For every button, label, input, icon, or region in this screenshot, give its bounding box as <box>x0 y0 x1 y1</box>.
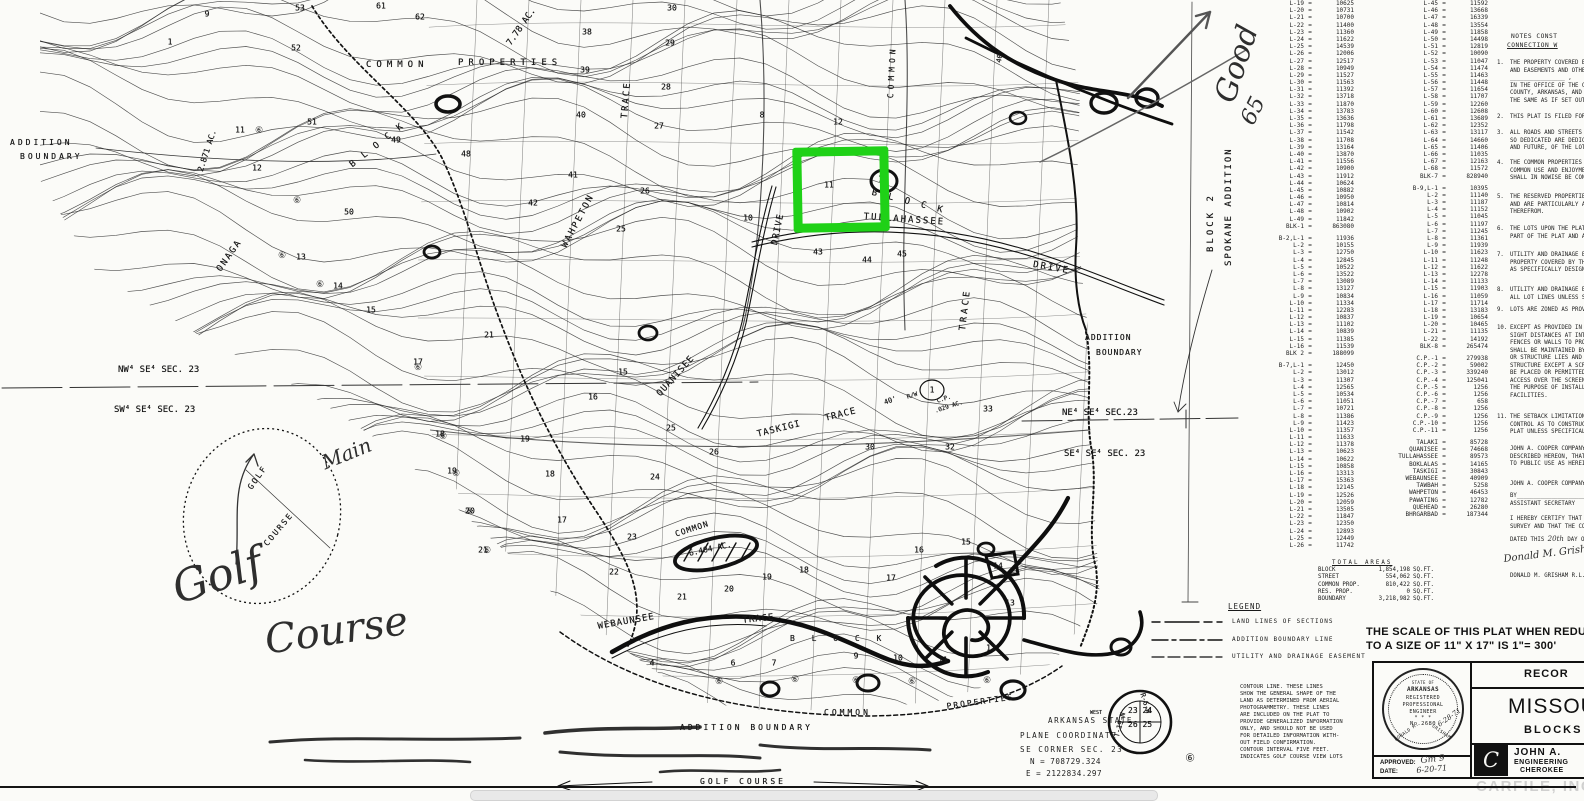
firm-name: JOHN A. <box>1514 747 1561 758</box>
lot-area-cell: C.P.-11 <box>1388 427 1438 434</box>
total-areas-row: BOUNDARY3,218,982SQ.FT. <box>1318 596 1435 602</box>
lot-area-row: L-7=13089 <box>1254 278 1354 285</box>
lot-area-cell: L-17 <box>1388 300 1438 307</box>
lot-area-row: L-49=11858 <box>1388 29 1488 36</box>
lot-area-cell: L-13 <box>1254 448 1304 455</box>
lot-area-cell: = <box>1438 137 1450 144</box>
note-line: AND ARE PARTICULARLY AND <box>1510 202 1584 210</box>
lot-area-row: L-48=10902 <box>1254 208 1354 215</box>
lot-area-cell: 89573 <box>1450 453 1488 460</box>
lot-area-cell: = <box>1304 194 1316 201</box>
lot-area-row: L-6=11197 <box>1388 221 1488 228</box>
lot-area-cell: 11360 <box>1316 29 1354 36</box>
lot-area-cell: 13164 <box>1316 144 1354 151</box>
lot-area-cell: 11707 <box>1450 93 1488 100</box>
lot-area-cell: 10834 <box>1316 293 1354 300</box>
lot-number: 26 <box>640 187 650 196</box>
lot-area-cell: L-9 <box>1388 242 1438 249</box>
note-number: 11. <box>1497 414 1507 422</box>
lot-area-cell: 11563 <box>1316 79 1354 86</box>
lot-area-cell: 188099 <box>1316 350 1354 357</box>
lot-area-cell: 11047 <box>1450 58 1488 65</box>
lot-area-cell: 11102 <box>1316 321 1354 328</box>
lot-area-row: L-28=10949 <box>1254 65 1354 72</box>
lot-area-cell: = <box>1438 235 1450 242</box>
lot-area-row: L-18=13183 <box>1388 307 1488 314</box>
lot-area-cell: 11858 <box>1450 29 1488 36</box>
lot-number: 7 <box>772 659 777 668</box>
lot-area-cell: L-8 <box>1254 413 1304 420</box>
lot-area-cell: 10949 <box>1316 65 1354 72</box>
note-line: TO PUBLIC USE AS HEREIN STATED <box>1510 461 1584 469</box>
lot-area-cell: = <box>1304 513 1316 520</box>
lot-area-cell: 1256 <box>1450 413 1488 420</box>
lot-area-cell: 10882 <box>1316 187 1354 194</box>
lot-area-cell: BOKLALAS <box>1388 461 1438 468</box>
lot-area-cell: = <box>1304 542 1316 549</box>
lot-area-row: L-39=13164 <box>1254 144 1354 151</box>
golf-view-lot-marker: ⑥ <box>483 546 491 556</box>
lot-area-cell: L-6 <box>1388 221 1438 228</box>
lot-area-row: L-11=12283 <box>1254 307 1354 314</box>
lot-area-row: C.P.-2=59002 <box>1388 362 1488 369</box>
lot-number: 20 <box>724 585 734 594</box>
lot-area-row: L-51=12819 <box>1388 43 1488 50</box>
plat-note: 10.EXCEPT AS PROVIDED IN THESIGHT DISTAN… <box>1497 325 1584 400</box>
total-areas-cell: 0 <box>1370 589 1410 595</box>
lot-number: 32 <box>945 443 955 452</box>
lot-area-cell: L-12 <box>1254 314 1304 321</box>
lot-area-cell: = <box>1438 475 1450 482</box>
lot-area-cell: = <box>1438 79 1450 86</box>
lot-area-row: PAWATING=12782 <box>1388 497 1488 504</box>
lot-area-cell: L-5 <box>1254 264 1304 271</box>
lot-area-cell: L-63 <box>1388 129 1438 136</box>
lot-number: 18 <box>799 566 809 575</box>
lot-area-row: L-14=10839 <box>1254 328 1354 335</box>
lot-area-cell: BLK-7 <box>1388 173 1438 180</box>
legend-title: LEGEND <box>1228 602 1261 611</box>
lot-area-cell: = <box>1438 391 1450 398</box>
lot-area-cell: = <box>1438 489 1450 496</box>
lot-area-row: L-15=11385 <box>1254 336 1354 343</box>
golf-view-lot-marker: ⑥ <box>983 676 991 686</box>
common-properties-label: COMMON <box>366 60 429 70</box>
lot-area-cell: L-30 <box>1254 79 1304 86</box>
lot-area-cell: 11870 <box>1316 101 1354 108</box>
lot-area-cell: 14660 <box>1450 137 1488 144</box>
lot-area-cell: 11187 <box>1450 199 1488 206</box>
lot-area-cell: 1256 <box>1450 391 1488 398</box>
total-areas-cell: STREET <box>1318 574 1370 580</box>
lot-area-row: L-3=12750 <box>1254 249 1354 256</box>
lot-area-row: L-25=12449 <box>1254 535 1354 542</box>
lot-area-cell: L-10 <box>1254 300 1304 307</box>
lot-area-cell: = <box>1438 108 1450 115</box>
lot-area-cell: 11035 <box>1450 151 1488 158</box>
lot-area-cell: 279938 <box>1450 355 1488 362</box>
lot-area-cell: 11798 <box>1316 122 1354 129</box>
lot-area-row: B-2,L-1=11936 <box>1254 235 1354 242</box>
lot-number: 44 <box>862 256 872 265</box>
lot-area-cell: 11556 <box>1316 158 1354 165</box>
lot-area-row: C.P.-10=1256 <box>1388 420 1488 427</box>
lot-number: 43 <box>813 248 823 257</box>
lot-area-cell: 13313 <box>1316 470 1354 477</box>
lot-area-cell: = <box>1304 448 1316 455</box>
lot-area-row: L-36=11798 <box>1254 122 1354 129</box>
note-line: SIGHT DISTANCES AT INTERS <box>1510 333 1584 341</box>
lot-area-row: L-15=11903 <box>1388 285 1488 292</box>
lot-area-row: L-22=11400 <box>1254 22 1354 29</box>
engineer-stamp: STATE OF ARKANSAS REGISTERED PROFESSIONA… <box>1382 668 1464 750</box>
lot-area-cell: 26280 <box>1450 504 1488 511</box>
lot-area-cell: 11714 <box>1450 300 1488 307</box>
lot-area-cell: = <box>1304 427 1316 434</box>
lot-area-cell: L-9 <box>1254 293 1304 300</box>
note-line: AND EASEMENTS AND OTHER R <box>1510 68 1584 76</box>
lot-area-cell: = <box>1304 7 1316 14</box>
lot-area-row: L-17=11714 <box>1388 300 1488 307</box>
lot-area-row: TALAKI=85728 <box>1388 439 1488 446</box>
lot-area-row: L-67=12163 <box>1388 158 1488 165</box>
lot-area-cell: = <box>1438 369 1450 376</box>
note-line: DONALD M. GRISHAM R.L.S. P <box>1510 573 1584 581</box>
lot-area-cell: 265474 <box>1450 343 1488 350</box>
lot-number: 24 <box>650 473 660 482</box>
lot-area-cell: = <box>1304 173 1316 180</box>
lot-area-row: L-46=10950 <box>1254 194 1354 201</box>
note-line: THE PURPOSE OF INSTALLATI <box>1510 385 1584 393</box>
golf-view-lot-marker: ⑥ <box>908 677 916 687</box>
lot-area-cell: 11463 <box>1450 72 1488 79</box>
lot-area-cell: C.P.-1 <box>1388 355 1438 362</box>
lot-area-cell: L-7 <box>1388 228 1438 235</box>
lot-area-cell: BLK-8 <box>1388 343 1438 350</box>
lot-area-cell: = <box>1438 14 1450 21</box>
section-numbers-top: 23|24 <box>1128 706 1152 715</box>
lot-area-cell: L-18 <box>1254 484 1304 491</box>
lot-number: 21 <box>484 331 494 340</box>
lot-area-cell: 12450 <box>1316 362 1354 369</box>
lot-area-cell: = <box>1438 482 1450 489</box>
lot-area-cell: 11474 <box>1450 65 1488 72</box>
lot-area-cell: L-16 <box>1254 343 1304 350</box>
lot-area-cell: 10624 <box>1316 180 1354 187</box>
lot-area-cell: L-23 <box>1254 520 1304 527</box>
lot-area-cell: L-22 <box>1388 336 1438 343</box>
lot-area-cell: 10395 <box>1450 185 1488 192</box>
lot-area-cell: L-57 <box>1388 86 1438 93</box>
lot-area-cell: L-15 <box>1388 285 1438 292</box>
note-line: CONTROL AS TO CONSTRUCTIO <box>1510 422 1584 430</box>
note-number: 3. <box>1497 130 1504 138</box>
lot-area-cell: = <box>1304 413 1316 420</box>
lot-area-cell: = <box>1438 29 1450 36</box>
title-block-divider <box>1470 663 1472 777</box>
lot-area-cell: 16339 <box>1450 14 1488 21</box>
lot-area-cell: = <box>1304 158 1316 165</box>
lot-area-cell: 13636 <box>1316 115 1354 122</box>
lot-area-cell: L-4 <box>1254 384 1304 391</box>
lot-area-cell: = <box>1304 343 1316 350</box>
lot-area-row: L-13=12278 <box>1388 271 1488 278</box>
lot-area-cell: L-16 <box>1254 470 1304 477</box>
lot-area-cell: = <box>1438 199 1450 206</box>
contour-note-line: OUT FIELD CONFIRMATION. <box>1240 740 1343 747</box>
lot-area-cell: = <box>1304 528 1316 535</box>
lot-area-cell: = <box>1304 36 1316 43</box>
lot-area-row: L-2=11140 <box>1388 192 1488 199</box>
lot-area-row: L-46=13668 <box>1388 7 1488 14</box>
lot-area-row: L-44=10624 <box>1254 180 1354 187</box>
lot-area-cell: L-10 <box>1254 427 1304 434</box>
assistant-secretary-label: ASSISTANT SECRETARY <box>1497 501 1575 509</box>
lot-area-row: L-30=11563 <box>1254 79 1354 86</box>
contour-note-line: CONTOUR LINE. THESE LINES <box>1240 684 1343 691</box>
lot-number: 26 <box>709 448 719 457</box>
section-quarter-label: NE⁴ SE⁴ SEC.23 <box>1062 408 1138 418</box>
block2-label: BLOCK 2 <box>1206 193 1216 252</box>
lot-area-cell: 10654 <box>1450 314 1488 321</box>
lot-area-cell: = <box>1438 405 1450 412</box>
lot-area-cell: = <box>1438 221 1450 228</box>
lot-area-cell: 12283 <box>1316 307 1354 314</box>
lot-area-table-col1: L-19=10625L-20=10731L-21=10700L-22=11400… <box>1254 0 1354 549</box>
lot-area-row: BLK-8=265474 <box>1388 343 1488 350</box>
plat-map-scan: ADDITIONBOUNDARYCOMMONPROPERTIES7.78 AC.… <box>0 0 1584 799</box>
lot-area-cell: = <box>1438 321 1450 328</box>
section-quarter-label: SE⁴ SE⁴ SEC. 23 <box>1064 449 1145 459</box>
lot-area-cell: L-5 <box>1388 213 1438 220</box>
by-signature-line: BY_____________________ <box>1497 493 1584 501</box>
lot-area-cell: 11386 <box>1316 413 1354 420</box>
lot-area-cell: 10839 <box>1316 328 1354 335</box>
lot-number: 11 <box>938 656 948 665</box>
note-line: DATED THIS 20th DAY OF_______ <box>1510 536 1584 545</box>
lot-area-cell: L-4 <box>1254 257 1304 264</box>
date-value: 6-20-71 <box>1416 763 1448 775</box>
lot-area-row: L-35=13636 <box>1254 115 1354 122</box>
lot-area-cell: 11385 <box>1316 336 1354 343</box>
total-areas-cell: SQ.FT. <box>1413 582 1435 588</box>
lot-area-cell: L-5 <box>1254 391 1304 398</box>
lot-area-row: L-3=11187 <box>1388 199 1488 206</box>
lot-area-cell: = <box>1438 36 1450 43</box>
lot-area-cell: C.P.-3 <box>1388 369 1438 376</box>
lot-area-row: L-9=10834 <box>1254 293 1354 300</box>
lot-area-cell: 11527 <box>1316 72 1354 79</box>
lot-area-cell: = <box>1304 434 1316 441</box>
lot-number: 13 <box>296 253 306 262</box>
lot-area-row: L-41=11556 <box>1254 158 1354 165</box>
golf-view-lot-marker: ⑥ <box>791 675 799 685</box>
note-line: FACILITIES. <box>1510 393 1584 401</box>
lot-area-cell: 12350 <box>1316 520 1354 527</box>
lot-area-cell: L-8 <box>1388 235 1438 242</box>
lot-area-row: L-8=11386 <box>1254 413 1354 420</box>
common-properties-label: COMMON <box>824 708 871 717</box>
lot-number: 29 <box>665 39 675 48</box>
lot-area-cell: = <box>1304 208 1316 215</box>
lot-area-cell: = <box>1304 463 1316 470</box>
lot-area-cell: L-13 <box>1388 271 1438 278</box>
stamp-text: ARKANSAS <box>1384 686 1462 693</box>
lot-area-cell: 46453 <box>1450 489 1488 496</box>
lot-area-cell: = <box>1304 50 1316 57</box>
addition-boundary-label: ADDITION <box>1085 333 1132 342</box>
lot-area-cell: L-20 <box>1254 7 1304 14</box>
lot-area-cell: = <box>1438 206 1450 213</box>
horizontal-scrollbar[interactable] <box>470 790 1158 801</box>
lot-area-cell: L-42 <box>1254 165 1304 172</box>
lot-area-cell: = <box>1438 468 1450 475</box>
lot-area-cell: 10090 <box>1450 50 1488 57</box>
lot-area-cell: 11307 <box>1316 377 1354 384</box>
lot-area-row: L-33=11870 <box>1254 101 1354 108</box>
lot-area-cell: 11936 <box>1316 235 1354 242</box>
note-line: PART OF THE PLAT AND ARE <box>1510 234 1584 242</box>
lot-area-cell: = <box>1304 441 1316 448</box>
note-line: ACCESS OVER THE SCREENING <box>1510 378 1584 386</box>
lot-area-cell: L-25 <box>1254 535 1304 542</box>
lot-area-cell: QUEHEAD <box>1388 504 1438 511</box>
lot-area-row: BHRGARBAD=187344 <box>1388 511 1488 518</box>
lot-area-cell: L-3 <box>1388 199 1438 206</box>
lot-area-cell: = <box>1438 271 1450 278</box>
lot-area-cell: = <box>1304 321 1316 328</box>
firm-line: ENGINEERING <box>1514 759 1569 766</box>
note-line: COMMON USE AND ENJOYMENT <box>1510 168 1584 176</box>
lot-area-row: L-34=13783 <box>1254 108 1354 115</box>
lot-area-cell: L-48 <box>1254 208 1304 215</box>
total-areas-cell: SQ.FT. <box>1413 567 1435 573</box>
lot-area-cell: = <box>1438 343 1450 350</box>
lot-area-cell: 10622 <box>1316 456 1354 463</box>
date-label: DATE: <box>1380 769 1398 775</box>
note-number: 9. <box>1497 307 1504 315</box>
lot-area-cell: 11045 <box>1450 213 1488 220</box>
note-number: 7. <box>1497 252 1504 260</box>
lot-area-cell: = <box>1304 405 1316 412</box>
surveyor-signature: Donald M. Grisham <box>1503 542 1584 565</box>
addition-boundary-label: BOUNDARY <box>1096 348 1143 357</box>
lot-area-cell: L-66 <box>1388 151 1438 158</box>
note-line: THE SAME AS IF SET OUT IN <box>1510 98 1584 106</box>
lot-area-cell: L-21 <box>1254 506 1304 513</box>
note-line: ASSISTANT SECRETARY <box>1510 501 1575 509</box>
lot-area-cell: = <box>1304 499 1316 506</box>
lot-area-cell: L-4 <box>1388 206 1438 213</box>
golf-view-lot-marker: ⑥ <box>414 363 422 373</box>
lot-area-cell: L-24 <box>1254 36 1304 43</box>
section-numbers-bottom: 26|25 <box>1128 720 1152 729</box>
lot-area-cell: B-9,L-1 <box>1388 185 1438 192</box>
lot-area-cell: 12517 <box>1316 58 1354 65</box>
lot-area-cell: L-19 <box>1254 492 1304 499</box>
lot-area-row: L-49=11842 <box>1254 216 1354 223</box>
lot-number: 16 <box>914 546 924 555</box>
lot-area-cell: C.P.-6 <box>1388 391 1438 398</box>
lot-number: 61 <box>376 2 386 11</box>
lot-area-row: BLK 2=188099 <box>1254 350 1354 357</box>
lot-area-row: L-22=14192 <box>1388 336 1488 343</box>
lot-area-cell: = <box>1438 65 1450 72</box>
lot-area-row: L-21=10700 <box>1254 14 1354 21</box>
lot-area-cell: = <box>1304 293 1316 300</box>
lot-area-cell: WAHPETON <box>1388 489 1438 496</box>
note-line: SHALL IN NOWISE BE CONSID <box>1510 175 1584 183</box>
lot-area-cell: = <box>1304 151 1316 158</box>
lot-area-row: L-11=11248 <box>1388 257 1488 264</box>
note-number: 1. <box>1497 60 1504 68</box>
lot-area-cell: 10465 <box>1450 321 1488 328</box>
lot-number: 40 <box>576 111 586 120</box>
lot-area-cell: = <box>1304 477 1316 484</box>
contour-note-line: INDICATES GOLF COURSE VIEW LOTS <box>1240 754 1343 761</box>
lot-area-cell: = <box>1438 43 1450 50</box>
plat-note: 8.UTILITY AND DRAINAGE EASEALL LOT LINES… <box>1497 287 1584 302</box>
state-plane-northing: N = 708729.324 <box>1030 757 1101 766</box>
lot-area-cell: = <box>1304 93 1316 100</box>
lot-area-cell: 11847 <box>1316 513 1354 520</box>
lot-area-cell: 15363 <box>1316 477 1354 484</box>
golf-view-lot-marker: ⑥ <box>293 196 301 206</box>
lot-area-cell: L-7 <box>1254 405 1304 412</box>
total-areas-row: STREET554,062SQ.FT. <box>1318 574 1435 580</box>
note-line: STRUCTURE EXCEPT A SCREEN <box>1510 363 1584 371</box>
lot-area-cell: 13012 <box>1316 369 1354 376</box>
total-areas-cell: SQ.FT. <box>1413 596 1435 602</box>
lot-area-cell: 1256 <box>1450 405 1488 412</box>
lot-area-cell: L-49 <box>1388 29 1438 36</box>
note-line: SO DEDICATED ARE DEDICATE <box>1510 138 1584 146</box>
lot-area-row: BLK-1=863080 <box>1254 223 1354 230</box>
lot-area-cell: L-44 <box>1254 180 1304 187</box>
lot-area-cell: = <box>1438 58 1450 65</box>
plat-note: 7.UTILITY AND DRAINAGE EASEPROPERTY COVE… <box>1497 252 1584 275</box>
lot-area-row: C.P.-8=1256 <box>1388 405 1488 412</box>
lot-area-cell: 12449 <box>1316 535 1354 542</box>
lot-number: 11 <box>235 126 245 135</box>
lot-area-cell: 11140 <box>1450 192 1488 199</box>
lot-area-row: L-5=11045 <box>1388 213 1488 220</box>
lot-number: 9 <box>854 652 859 661</box>
lot-area-cell: L-16 <box>1388 293 1438 300</box>
lot-area-cell: = <box>1438 86 1450 93</box>
lot-area-row: BOKLALAS=14165 <box>1388 461 1488 468</box>
lot-area-cell: = <box>1304 43 1316 50</box>
lot-area-row: L-19=12526 <box>1254 492 1354 499</box>
total-areas-table: TOTAL AREAS BLOCK1,854,198SQ.FT.STREET55… <box>1318 560 1435 602</box>
lot-area-row: L-7=10721 <box>1254 405 1354 412</box>
total-areas-cell: SQ.FT. <box>1413 574 1435 580</box>
lot-area-row: C.P.-3=339240 <box>1388 369 1488 376</box>
lot-area-cell: L-18 <box>1388 307 1438 314</box>
lot-area-cell: TAWBAH <box>1388 482 1438 489</box>
lot-area-row: L-16=11539 <box>1254 343 1354 350</box>
lot-area-cell: = <box>1438 158 1450 165</box>
lot-area-cell: 13183 <box>1450 307 1488 314</box>
lot-number: 53 <box>295 4 305 13</box>
notes-heading: NOTES CONST <box>1511 33 1557 40</box>
lot-area-cell: L-13 <box>1254 321 1304 328</box>
lot-area-cell: 10522 <box>1316 264 1354 271</box>
lot-area-cell: 125041 <box>1450 377 1488 384</box>
lot-number: 41 <box>568 171 578 180</box>
total-areas-cell: 1,854,198 <box>1370 567 1410 573</box>
lot-area-cell: C.P.-4 <box>1388 377 1438 384</box>
